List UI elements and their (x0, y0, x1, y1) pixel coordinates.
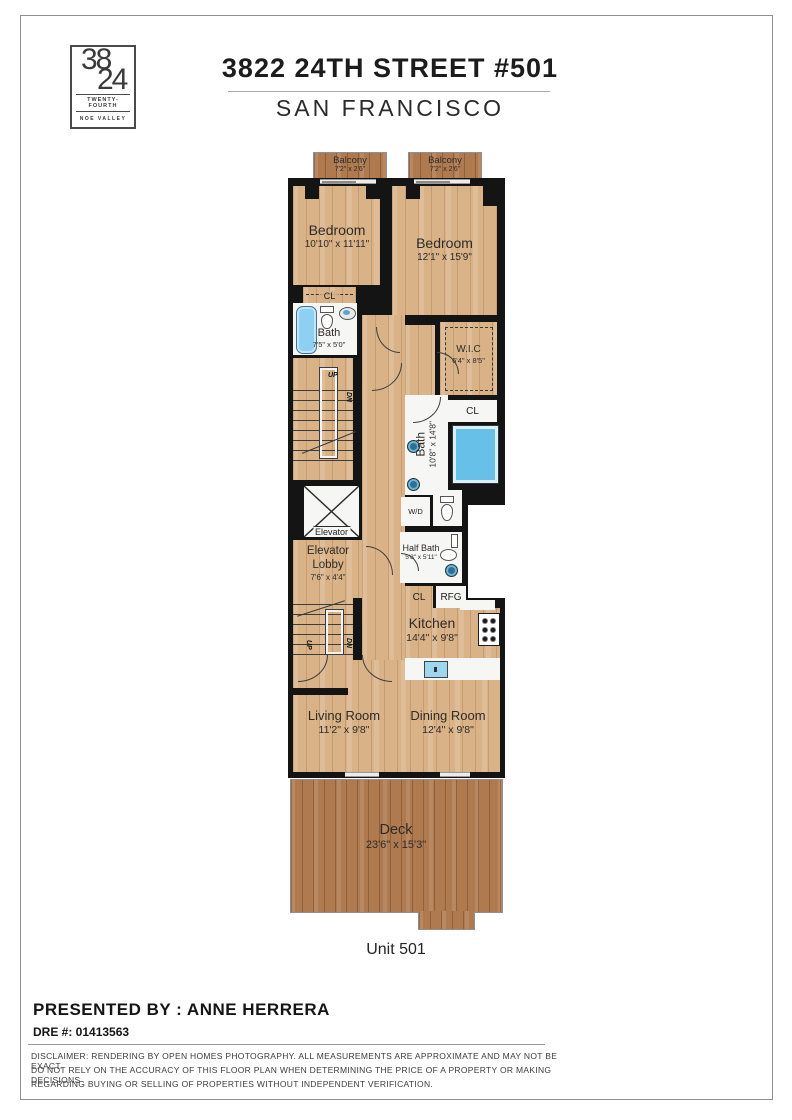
wall-notch (406, 186, 420, 199)
deck-tab (418, 911, 475, 930)
closet-label: CL (321, 291, 339, 301)
deck-label: Deck 23'6" x 15'3" (346, 822, 446, 853)
room-name: Bedroom (294, 222, 380, 239)
burner-icon (483, 619, 487, 623)
room-name: Living Room (294, 708, 394, 724)
room-name: Elevator Lobby (294, 545, 362, 573)
kitchen-label: Kitchen 14'4" x 9'8" (387, 615, 477, 644)
room-dims: 7'2" x 2'6" (409, 166, 481, 174)
toilet-icon (320, 306, 334, 328)
sink-basin (343, 310, 350, 315)
room-name: Balcony (314, 155, 386, 166)
room-dims: 5'8" x 5'11" (401, 554, 441, 562)
wall-notch (305, 186, 319, 199)
room-name: Half Bath (401, 543, 441, 554)
window (440, 772, 470, 777)
living-room-label: Living Room 11'2" x 9'8" (294, 708, 394, 736)
room-dims: 23'6" x 15'3" (346, 839, 446, 852)
kitchen-closet-label: CL (405, 586, 433, 608)
room-name: Bedroom (393, 235, 496, 252)
presented-by: PRESENTED BY : ANNE HERRERA (33, 1000, 330, 1020)
exterior-cutout (468, 505, 506, 598)
burner-icon (483, 628, 487, 632)
kitchen-sink (424, 661, 448, 678)
half-bath-label: Half Bath 5'8" x 5'11" (401, 543, 441, 562)
room-dims: 11'2" x 9'8" (294, 724, 394, 737)
elevator-cab: Elevator (303, 485, 360, 538)
room-dims: 7'5" x 5'0" (303, 340, 355, 349)
elevator-lobby-label: Elevator Lobby 7'6" x 4'4" (294, 545, 362, 582)
burner-icon (491, 628, 495, 632)
room-dims: 7'2" x 2'6" (314, 166, 386, 174)
burner-icon (491, 619, 495, 623)
washer-dryer-label: W/D (408, 507, 423, 516)
refrigerator-label: RFG (440, 592, 461, 603)
room-name: Balcony (409, 155, 481, 166)
disclaimer-line3: REGARDING BUYING OR SELLING OF PROPERTIE… (31, 1079, 561, 1089)
room-dims: 12'1" x 15'9" (393, 252, 496, 264)
room-dims: 6'4" x 8'5" (440, 356, 497, 365)
flyer-page: { "logo": {"top": "38", "bottom": "24", … (0, 0, 792, 1120)
shower (452, 425, 499, 484)
room-name: Kitchen (387, 615, 477, 632)
dre-number: DRE #: 01413563 (33, 1025, 129, 1039)
stairs-dn-label: DN (345, 638, 352, 648)
sliding-door (416, 181, 450, 183)
stove (478, 613, 500, 646)
footer-divider (28, 1044, 545, 1045)
room-dims: 12'4" x 9'8" (398, 724, 498, 737)
stairs-dn-label: DN (345, 392, 352, 402)
room-dims: 7'6" x 4'4" (294, 573, 362, 583)
kitchen-counter (405, 658, 500, 680)
stairs-up-label: UP (305, 640, 312, 650)
toilet-icon (440, 496, 454, 520)
window (345, 772, 379, 777)
burner-icon (483, 637, 487, 641)
room-dims: 10'10" x 11'11" (294, 239, 380, 251)
room-name: Dining Room (398, 708, 498, 724)
elevator-label: Elevator (313, 526, 350, 537)
closet-label: CL (413, 592, 426, 603)
floor-plan: Balcony 7'2" x 2'6" Balcony 7'2" x 2'6" … (0, 0, 792, 1120)
living-wall-stub (288, 688, 348, 695)
burner-icon (491, 637, 495, 641)
room-name: W.I.C (440, 344, 497, 356)
stair-rail (326, 610, 343, 654)
wall-notch (366, 186, 380, 199)
closet-label: CL (466, 406, 479, 417)
room-dims: 10'8" x 14'8" (428, 399, 438, 489)
wic-label: W.I.C 6'4" x 8'5" (440, 344, 497, 365)
wall-notch (483, 186, 497, 206)
washer-dryer: W/D (401, 497, 430, 526)
room-dims: 14'4" x 9'8" (387, 632, 477, 645)
unit-label: Unit 501 (296, 941, 496, 959)
bath-top-label: Bath 7'5" x 5'0" (303, 327, 355, 349)
sliding-door (322, 181, 356, 183)
room-name: Bath (303, 327, 355, 340)
closet-right: CL (448, 400, 497, 422)
faucet-icon (434, 667, 437, 672)
room-name: Bath (414, 399, 428, 489)
dining-room-label: Dining Room 12'4" x 9'8" (398, 708, 498, 736)
sink-icon (445, 564, 458, 577)
bedroom-right-label: Bedroom 12'1" x 15'9" (393, 235, 496, 264)
room-name: Deck (346, 822, 446, 839)
staircase-lower (293, 604, 353, 656)
bedroom-left-label: Bedroom 10'10" x 11'11" (294, 222, 380, 251)
stairs-up-label: UP (328, 372, 338, 379)
hall-upper-floor (405, 325, 435, 395)
bath-main-label: Bath 10'8" x 14'8" (414, 399, 439, 489)
bedroom-closet-label: CL (303, 287, 356, 304)
sink-icon (339, 307, 356, 320)
kitchen-counter-top (460, 600, 495, 610)
